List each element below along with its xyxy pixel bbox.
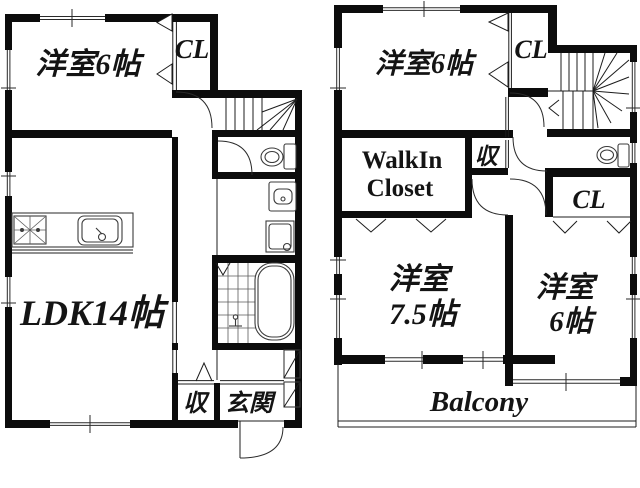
wic-label-line1: WalkIn xyxy=(362,147,443,174)
bedroom-6-label-line2: 6帖 xyxy=(549,306,598,338)
door-arc-icon xyxy=(510,179,546,215)
bedroom-75-label-line2: 7.5帖 xyxy=(389,298,462,331)
storage-2f-label: 収 xyxy=(475,144,501,169)
storage-1f-label: 収 xyxy=(183,390,210,417)
floorplan-image: 洋室6帖 CL LDK14帖 収 玄関 xyxy=(0,0,640,488)
stove-icon xyxy=(14,216,46,244)
ldk-label: LDK14帖 xyxy=(19,293,170,333)
second-floor-plan: 洋室6帖 CL WalkIn Closet 収 CL 洋室 7.5帖 洋室 6帖… xyxy=(330,1,640,427)
door-arc-icon xyxy=(510,93,544,127)
closet-top-2f-label: CL xyxy=(514,35,547,64)
bedroom-6-label-line1: 洋室 xyxy=(536,271,599,304)
entrance-door-arc-icon xyxy=(238,419,284,458)
vanity-icon xyxy=(269,182,296,211)
door-arc-icon xyxy=(472,179,508,215)
entrance-label: 玄関 xyxy=(225,390,277,417)
window-icon xyxy=(629,143,638,163)
door-arc-icon xyxy=(513,137,547,171)
bedroom-top-2f-label: 洋室6帖 xyxy=(375,48,477,80)
window-icon xyxy=(629,257,638,274)
bedroom-75-label-line1: 洋室 xyxy=(389,262,454,296)
room-ldk-1f xyxy=(12,137,172,420)
balcony-label: Balcony xyxy=(429,386,528,418)
washer-pan-icon xyxy=(266,221,294,252)
wic-label-line2: Closet xyxy=(367,175,434,202)
closet-bottom-2f-label: CL xyxy=(572,185,605,214)
kitchen-counter-icon xyxy=(12,213,133,253)
storage-door-icon xyxy=(196,363,212,381)
first-floor-plan: 洋室6帖 CL LDK14帖 収 玄関 xyxy=(1,9,302,458)
closet-1f-label: CL xyxy=(175,34,210,64)
bedroom-1f-label: 洋室6帖 xyxy=(36,47,146,81)
floorplan-svg: 洋室6帖 CL LDK14帖 収 玄関 xyxy=(0,0,640,488)
